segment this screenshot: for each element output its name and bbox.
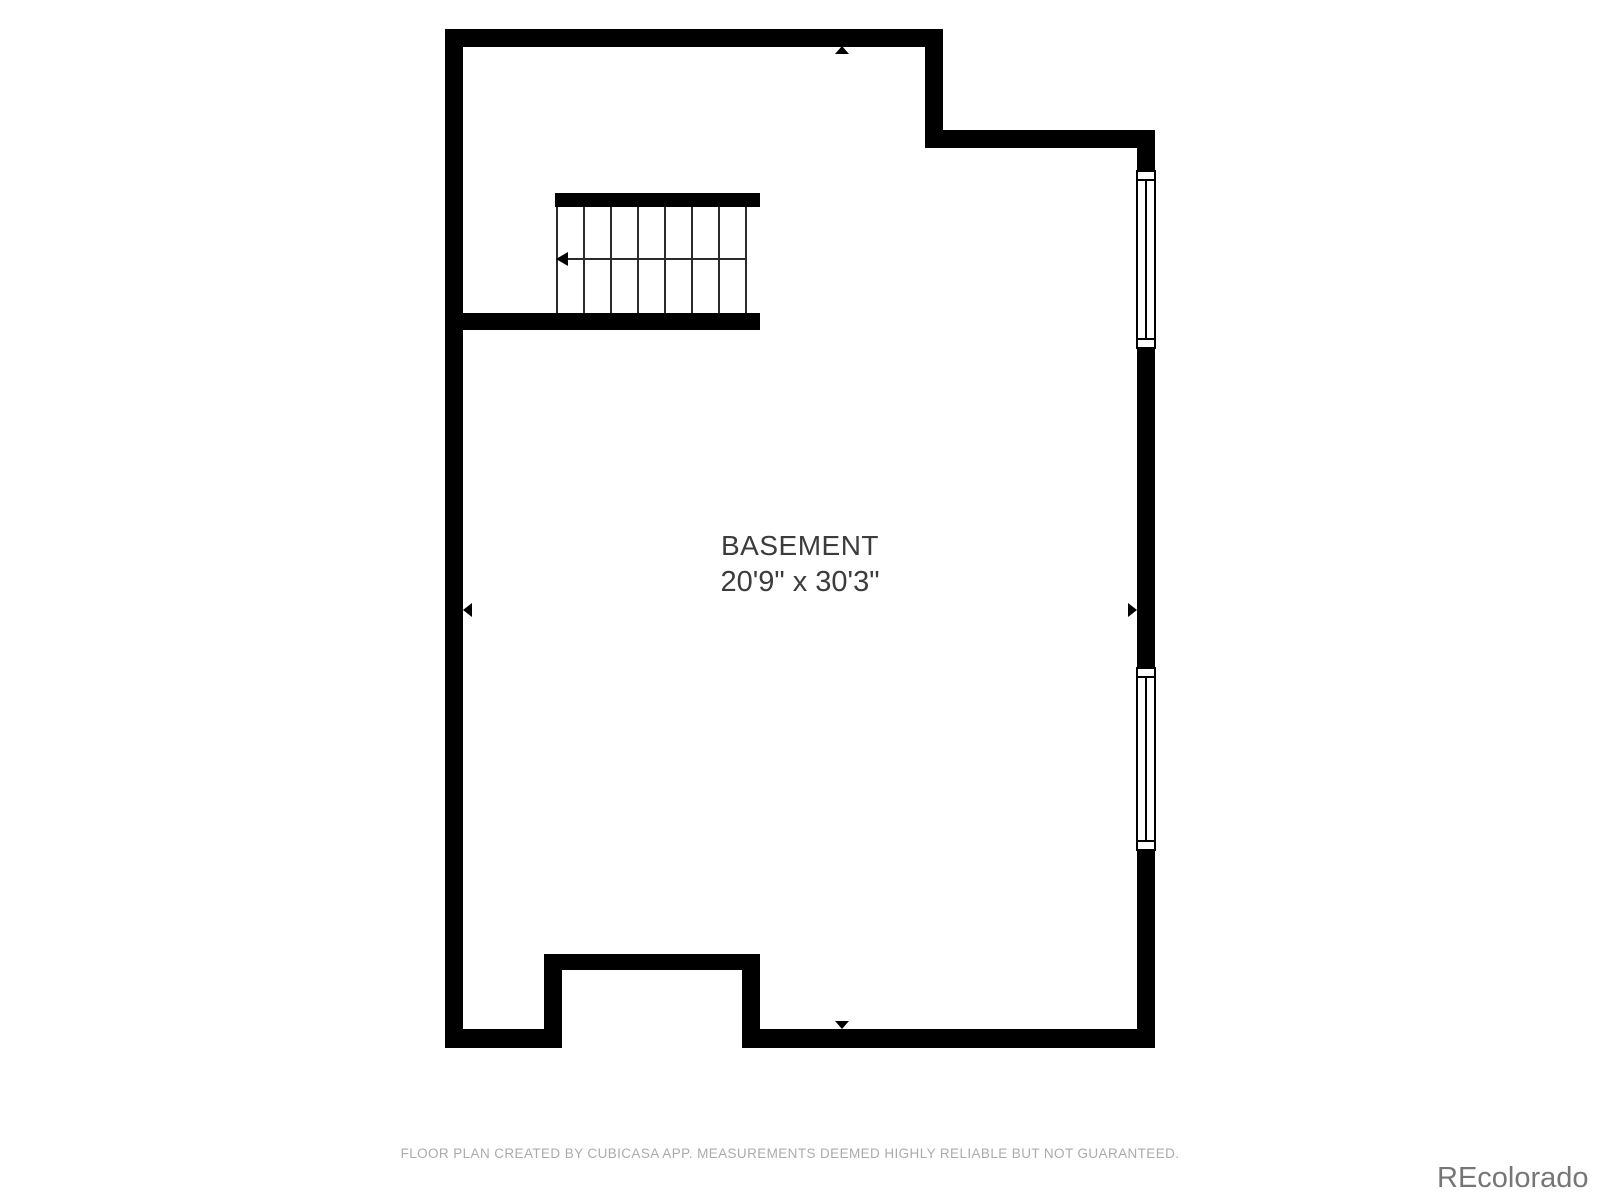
measure-arrow-left-icon: [463, 603, 472, 617]
room-dimensions: 20'9" x 30'3": [640, 565, 960, 599]
upper-right-wall: [925, 130, 1155, 148]
right-wall-middle: [1137, 347, 1155, 669]
window-lower: [1136, 667, 1156, 851]
stair-direction-arrow-icon: [556, 252, 568, 266]
floor-plan-canvas: BASEMENT 20'9" x 30'3" FLOOR PLAN CREATE…: [0, 0, 1600, 1200]
stair-step: [585, 207, 612, 313]
left-wall: [445, 29, 463, 1048]
right-wall-upper: [1137, 130, 1155, 172]
alcove-top-wall: [544, 954, 760, 970]
window-frame-line: [1137, 338, 1155, 340]
stair-step: [666, 207, 693, 313]
footer-disclaimer: FLOOR PLAN CREATED BY CUBICASA APP. MEAS…: [390, 1146, 1190, 1161]
stair-step: [693, 207, 720, 313]
stair-base-wall: [445, 313, 760, 330]
measure-arrow-down-icon: [835, 1021, 849, 1029]
stair-step: [612, 207, 639, 313]
right-wall-lower: [1137, 849, 1155, 1048]
window-pane-line: [1145, 180, 1147, 339]
stair-step: [639, 207, 666, 313]
window-pane-line: [1145, 677, 1147, 841]
room-name: BASEMENT: [640, 529, 960, 563]
alcove-right-wall: [742, 954, 760, 1048]
bottom-wall-right: [742, 1029, 1155, 1048]
stair-top-bar: [555, 193, 760, 207]
top-wall: [445, 29, 943, 47]
stair-steps: [556, 207, 747, 313]
room-label: BASEMENT 20'9" x 30'3": [640, 529, 960, 599]
stair-step: [720, 207, 747, 313]
measure-arrow-right-icon: [1128, 603, 1137, 617]
window-frame-line: [1137, 840, 1155, 842]
stair-direction-line: [563, 258, 746, 260]
watermark: REcolorado: [1437, 1162, 1589, 1195]
window-upper: [1136, 170, 1156, 349]
measure-arrow-up-icon: [835, 46, 849, 54]
